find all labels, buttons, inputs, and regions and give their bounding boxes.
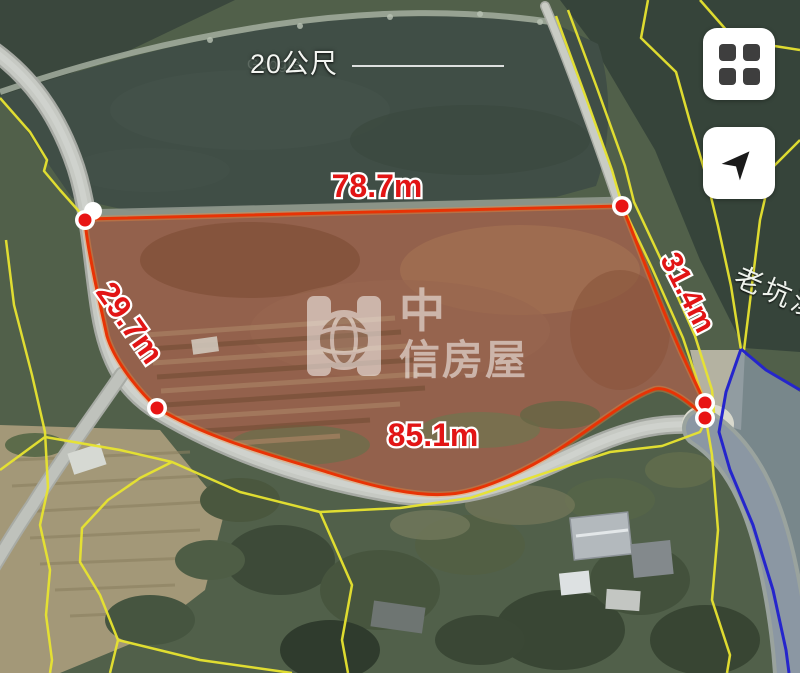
satellite-imagery: 78.7m 85.1m 29.7m 31.4m 老坑溪 <box>0 0 800 673</box>
scale-bar: 20公尺 <box>250 42 504 81</box>
scale-bar-label: 20公尺 <box>250 42 338 81</box>
measurement-label-bottom: 85.1m <box>388 417 479 453</box>
parcel-vertex-dot <box>147 398 167 418</box>
navigation-arrow-icon <box>720 144 758 182</box>
satellite-map-viewport[interactable]: 78.7m 85.1m 29.7m 31.4m 老坑溪 Google 20公尺 … <box>0 0 800 673</box>
parcel-vertex-dot <box>75 210 95 230</box>
scale-bar-line <box>352 65 504 67</box>
grid-icon <box>719 44 760 85</box>
parcel-vertex-dot <box>695 408 715 428</box>
measurement-label-top: 78.7m <box>332 168 423 204</box>
locate-button[interactable] <box>703 127 775 199</box>
tiles-button[interactable] <box>703 28 775 100</box>
parcel-vertex-dot <box>612 196 632 216</box>
